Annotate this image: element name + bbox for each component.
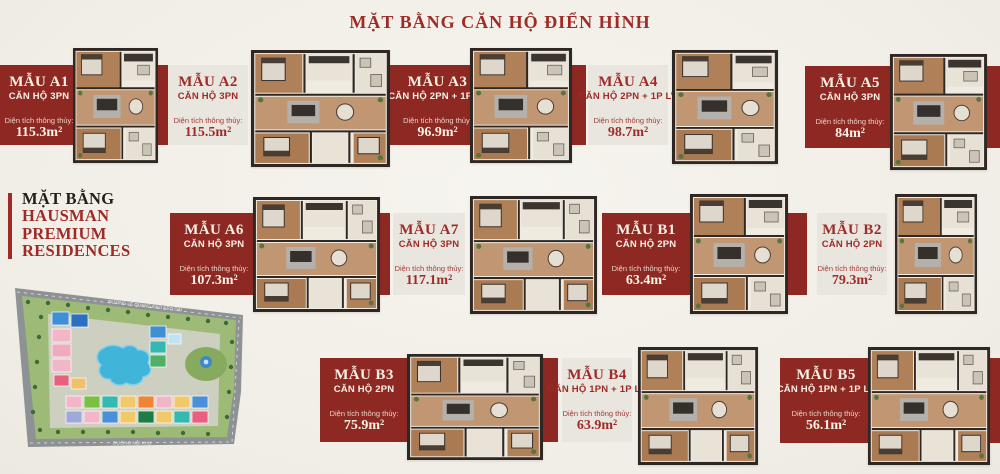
area-label: Diện tích thông thủy: xyxy=(395,264,464,273)
floorplan-a6-image xyxy=(253,197,380,312)
brochure-canvas: MẶT BẰNG CĂN HỘ ĐIỂN HÌNH MẪU A1 CĂN HỘ … xyxy=(0,0,1000,474)
unit-type: CĂN HỘ 2PN xyxy=(616,239,677,252)
brand-line-matbang: MẶT BẰNG xyxy=(22,190,130,207)
unit-type: CĂN HỘ 2PN xyxy=(334,384,395,397)
floorplan-b4-image xyxy=(638,347,758,465)
area-label: Diện tích thông thủy: xyxy=(174,116,243,125)
unit-area: 115.3m² xyxy=(16,125,63,141)
unit-area: 79.3m² xyxy=(832,273,872,289)
unit-area: 115.5m² xyxy=(185,125,232,141)
area-label: Diện tích thông thủy: xyxy=(563,409,632,418)
brand-line-hausman: HAUSMAN xyxy=(22,207,130,224)
unit-name: MẪU B1 xyxy=(616,222,675,239)
unit-name: MẪU B2 xyxy=(822,222,881,239)
area-label: Diện tích thông thủy: xyxy=(5,116,74,125)
unit-area: 56.1m² xyxy=(806,418,846,434)
unit-type: CĂN HỘ 2PN + 1P LV xyxy=(579,91,678,104)
unit-name: MẪU B3 xyxy=(334,367,393,384)
unit-type: CĂN HỘ 1PN + 1P LV xyxy=(548,384,647,397)
unit-card-a7: MẪU A7 CĂN HỘ 3PN Diện tích thông thủy: … xyxy=(393,213,465,295)
unit-area: 63.4m² xyxy=(626,273,666,289)
unit-name: MẪU A7 xyxy=(399,222,458,239)
area-label: Diện tích thông thủy: xyxy=(816,117,885,126)
floorplan-b1-image xyxy=(690,194,788,314)
site-plan-map: ĐƯỜNG LÊ QUANG ĐẠO KÉO DÀI ĐƯỜNG NỘI KHU xyxy=(8,272,256,468)
floorplan-a1-image xyxy=(73,48,158,163)
unit-name: MẪU A5 xyxy=(820,75,879,92)
unit-card-b4: MẪU B4 CĂN HỘ 1PN + 1P LV Diện tích thôn… xyxy=(562,358,632,442)
unit-type: CĂN HỘ 3PN xyxy=(820,92,881,105)
unit-area: 117.1m² xyxy=(406,273,453,289)
unit-area: 63.9m² xyxy=(577,418,617,434)
unit-name: MẪU A4 xyxy=(598,74,657,91)
floorplan-b3-image xyxy=(407,354,543,460)
area-label: Diện tích thông thủy: xyxy=(612,264,681,273)
area-label: Diện tích thông thủy: xyxy=(403,116,472,125)
area-label: Diện tích thông thủy: xyxy=(818,264,887,273)
unit-name: MẪU A2 xyxy=(178,74,237,91)
floorplan-a7-image xyxy=(470,196,597,314)
unit-card-a2: MẪU A2 CĂN HỘ 3PN Diện tích thông thủy: … xyxy=(168,65,248,145)
unit-type: CĂN HỘ 2PN xyxy=(822,239,883,252)
floorplan-a3-image xyxy=(470,48,572,163)
page-title: MẶT BẰNG CĂN HỘ ĐIỂN HÌNH xyxy=(0,12,1000,33)
floorplan-a2-image xyxy=(251,50,390,167)
unit-card-b2: MẪU B2 CĂN HỘ 2PN Diện tích thông thủy: … xyxy=(817,213,887,295)
unit-name: MẪU B5 xyxy=(796,367,855,384)
unit-name: MẪU A1 xyxy=(9,74,68,91)
floorplan-b2-image xyxy=(895,194,977,314)
pool-shape xyxy=(97,345,151,385)
area-label: Diện tích thông thủy: xyxy=(594,116,663,125)
unit-type: CĂN HỘ 3PN xyxy=(178,91,239,104)
unit-type: CĂN HỘ 3PN xyxy=(184,239,245,252)
brand-line-premium: PREMIUM xyxy=(22,225,130,242)
unit-name: MẪU B4 xyxy=(567,367,626,384)
unit-area: 96.9m² xyxy=(417,125,457,141)
unit-card-a4: MẪU A4 CĂN HỘ 2PN + 1P LV Diện tích thôn… xyxy=(588,65,668,145)
unit-type: CĂN HỘ 1PN + 1P LV xyxy=(777,384,876,397)
unit-type: CĂN HỘ 3PN xyxy=(399,239,460,252)
area-label: Diện tích thông thủy: xyxy=(792,409,861,418)
road-label-bottom: ĐƯỜNG NỘI KHU xyxy=(113,440,152,446)
unit-area: 75.9m² xyxy=(344,418,384,434)
floorplan-b5-image xyxy=(868,347,990,465)
brand-accent-bar xyxy=(8,193,12,259)
unit-area: 98.7m² xyxy=(608,125,648,141)
area-label: Diện tích thông thủy: xyxy=(330,409,399,418)
floorplan-a5-image xyxy=(890,54,987,170)
unit-name: MẪU A3 xyxy=(408,74,467,91)
floorplan-a4-image xyxy=(672,50,778,164)
unit-area: 84m² xyxy=(835,126,865,142)
brand-block: MẶT BẰNG HAUSMAN PREMIUM RESIDENCES xyxy=(8,190,130,259)
unit-name: MẪU A6 xyxy=(184,222,243,239)
brand-line-residences: RESIDENCES xyxy=(22,242,130,259)
unit-type: CĂN HỘ 3PN xyxy=(9,91,70,104)
